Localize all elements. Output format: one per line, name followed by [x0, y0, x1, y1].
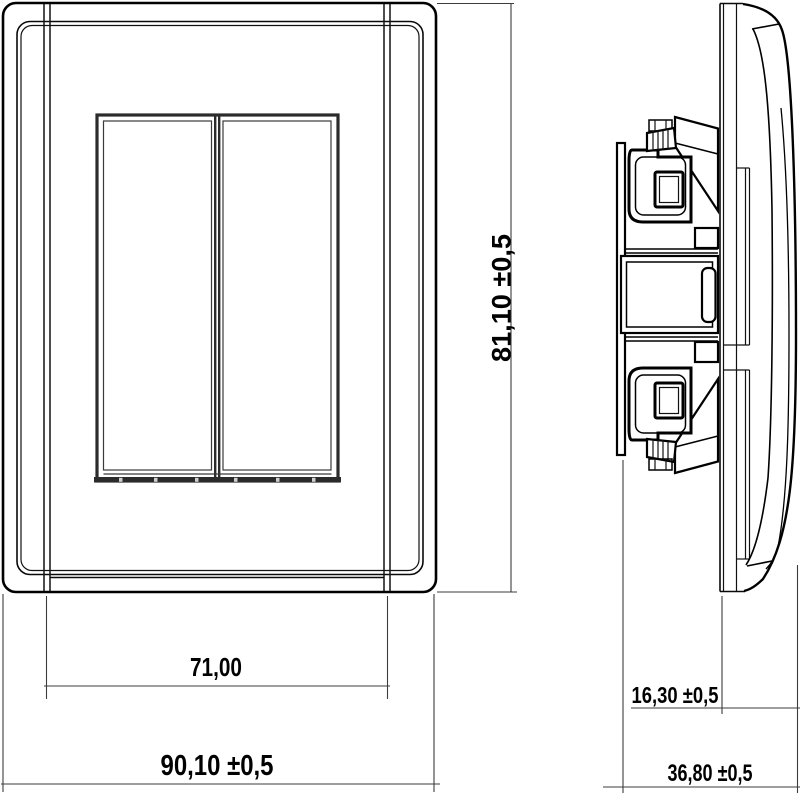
rocker-buttons: [94, 115, 341, 483]
rail-block-bottom: [695, 342, 718, 362]
rail-block-top: [695, 228, 718, 248]
clamp-top: [629, 150, 691, 222]
rocker-divider: [215, 115, 219, 481]
dimension-bezel-depth: 16,30 ±0,5: [631, 565, 800, 793]
faceplate-outer-curve: [743, 4, 796, 591]
faceplate-mid-curve: [766, 108, 789, 569]
dim-label-overall-depth: 36,80 ±0,5: [668, 760, 753, 787]
drawing-svg: 81,10 ±0,5 71,00 90,10 ±0,5 16,30 ±0,5: [0, 0, 800, 800]
switch-body: [621, 256, 718, 333]
technical-drawing-canvas: 81,10 ±0,5 71,00 90,10 ±0,5 16,30 ±0,5: [0, 0, 800, 800]
faceplate-profile: [743, 4, 796, 591]
clamp-bottom: [629, 368, 691, 440]
dimension-inner-width: 71,00: [44, 596, 390, 699]
mounting-frame: [720, 4, 750, 592]
dim-label-inner-width: 71,00: [190, 652, 242, 682]
side-view: [617, 4, 796, 592]
dim-label-bezel-depth: 16,30 ±0,5: [632, 682, 719, 708]
dim-label-overall-height: 81,10 ±0,5: [487, 234, 517, 362]
dimension-overall-height: 81,10 ±0,5: [437, 4, 517, 593]
front-view: [3, 3, 436, 592]
serrated-claw-bottom: [647, 439, 676, 470]
switch-mechanism: [617, 117, 718, 473]
frame-seam-right: [384, 4, 390, 591]
dimension-overall-width: 90,10 ±0,5: [1, 594, 440, 792]
dimension-overall-depth: 36,80 ±0,5: [603, 460, 800, 793]
dim-label-overall-width: 90,10 ±0,5: [161, 750, 274, 782]
frame-seam-left: [44, 4, 50, 591]
serrated-claw-top: [647, 120, 676, 151]
